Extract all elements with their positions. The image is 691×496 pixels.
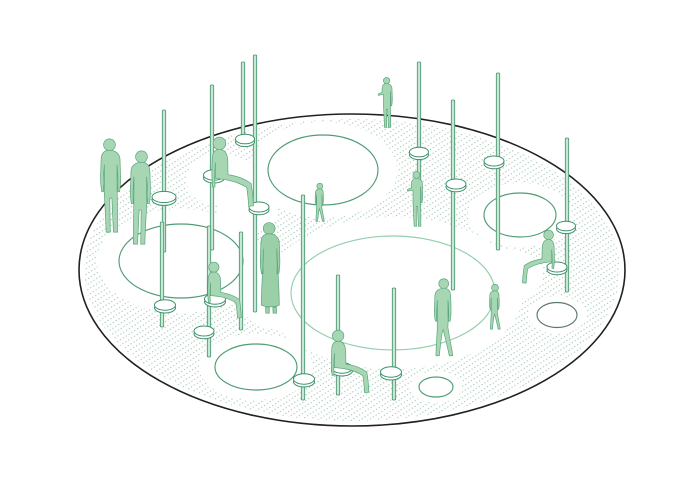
seat-ring xyxy=(484,156,504,169)
pole xyxy=(253,55,256,312)
seat-ring xyxy=(194,326,214,339)
installation-axonometric-illustration xyxy=(0,0,691,496)
seat-ring xyxy=(155,300,176,313)
pole xyxy=(301,195,304,400)
seat-ring xyxy=(446,179,466,192)
seat-ring xyxy=(557,221,576,233)
platform-hole xyxy=(537,303,577,328)
platform-hole xyxy=(484,193,556,237)
pole xyxy=(241,62,244,145)
seat-ring xyxy=(236,134,255,146)
seat-ring xyxy=(547,262,567,275)
pole xyxy=(451,100,454,290)
seat-ring xyxy=(381,367,402,380)
seat-ring xyxy=(152,191,176,205)
platform-hole xyxy=(215,344,297,390)
seat-ring xyxy=(410,147,429,159)
pole xyxy=(392,288,395,400)
platform-hole xyxy=(419,377,453,397)
page-background xyxy=(0,0,691,496)
seat-ring xyxy=(294,374,315,387)
